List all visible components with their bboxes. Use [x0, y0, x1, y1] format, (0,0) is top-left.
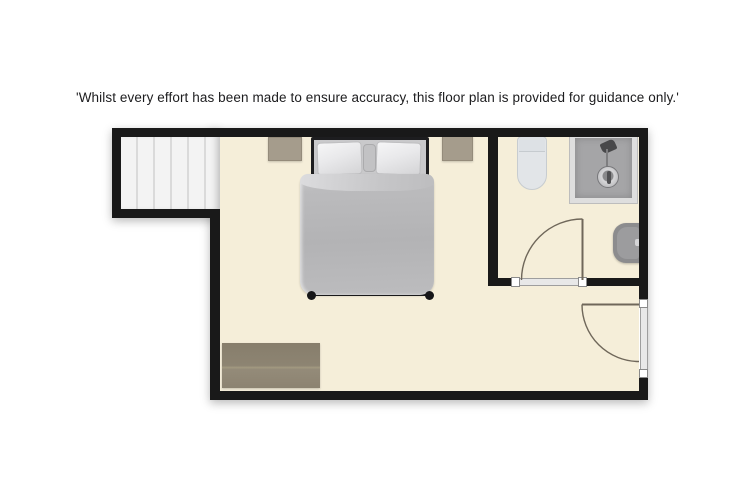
page: 'Whilst every effort has been made to en… — [0, 0, 755, 504]
entrance-door-arc — [582, 305, 639, 362]
bathroom-door-arc — [522, 219, 583, 280]
door-swings — [112, 128, 648, 400]
floor-plan — [112, 128, 648, 400]
disclaimer-text: 'Whilst every effort has been made to en… — [0, 90, 755, 105]
